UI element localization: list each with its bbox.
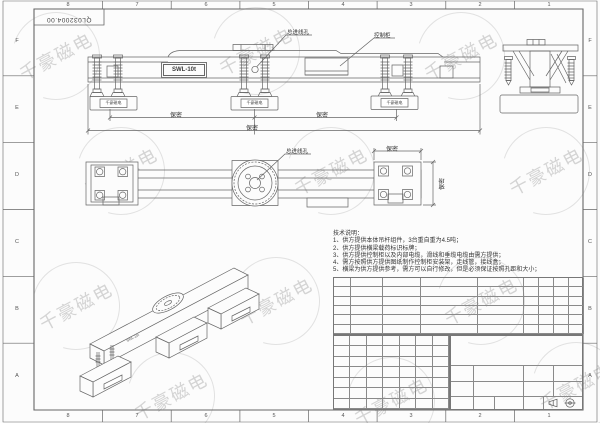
title-block-cell [451,382,473,396]
zone-letter-right: C [584,239,596,245]
inlet-hole-label: 总进线孔 [287,28,309,36]
table-cell [524,297,539,306]
table-cell [383,278,421,287]
table-cell [433,388,449,398]
table-cell [367,399,383,409]
title-block-cell [473,397,494,409]
table-cell [478,278,524,287]
zone-number-bottom: 7 [131,413,143,419]
table-cell [400,388,416,398]
table-cell [383,388,399,398]
table-cell [539,325,554,334]
table-cell [351,306,383,315]
table-cell [351,287,383,296]
table-cell [421,297,478,306]
table-cell [383,315,421,324]
table-cell [400,367,416,377]
zone-number-bottom: 8 [62,413,74,419]
zone-letter-left: C [11,239,23,245]
table-cell [351,297,383,306]
zone-letter-right: B [584,306,596,312]
table-cell [433,357,449,367]
table-cell [334,325,351,334]
title-block-cell [523,397,543,409]
front-view-linework [86,35,482,135]
zone-letter-right: A [584,373,596,379]
notes-line: 1、供方提供本体吊杆组件，3台重自重为4.5吨； [333,238,540,245]
table-cell [383,399,399,409]
zone-number-top: 8 [62,2,74,8]
table-cell [383,336,399,346]
zone-letter-left: B [11,306,23,312]
table-cell [478,287,524,296]
table-cell [350,346,366,356]
control-cabinet-label: 控制柜 [374,31,391,39]
table-cell [554,315,569,324]
isometric-view-linework [80,268,259,397]
table-cell [524,306,539,315]
table-cell [569,278,584,287]
table-cell [334,306,351,315]
table-cell [400,346,416,356]
plan-view-linework [86,148,436,207]
table-cell [383,297,421,306]
zone-letter-left: A [11,373,23,379]
table-cell [433,399,449,409]
zone-number-top: 3 [405,2,417,8]
table-cell [351,325,383,334]
table-cell [478,297,524,306]
table-cell [367,388,383,398]
table-cell [400,357,416,367]
table-cell [539,306,554,315]
zone-letter-right: F [584,38,596,44]
zone-number-top: 1 [543,2,555,8]
title-block-cell [553,366,582,381]
zone-number-bottom: 1 [543,413,555,419]
dim-label-width: 保密 [386,144,398,153]
table-cell [334,388,350,398]
table-cell [367,357,383,367]
zone-number-bottom: 3 [405,413,417,419]
table-cell [478,325,524,334]
table-cell [554,287,569,296]
table-cell [539,297,554,306]
table-cell [383,306,421,315]
table-cell [569,315,584,324]
title-block-cell [523,366,552,381]
table-cell [416,399,432,409]
technical-notes: 技术说明： 1、供方提供本体吊杆组件，3台重自重为4.5吨； 2、供方提供横梁载… [333,231,540,275]
table-cell [334,367,350,377]
table-cell [351,315,383,324]
projection-symbol-cell [543,397,582,409]
table-cell [569,297,584,306]
zone-letter-left: E [11,105,23,111]
table-cell [554,325,569,334]
table-cell [334,378,350,388]
table-cell [524,287,539,296]
table-cell [367,346,383,356]
title-block-cell [523,382,552,396]
title-block-cell [451,366,473,381]
magnet-logo-plate: 千豪磁电 [100,99,127,108]
notes-line: 5、横梁为供方提供参考，需方可以自行修改，但是必须保证按照孔距和大小； [333,267,540,274]
title-block-cell [494,397,523,409]
table-cell [367,367,383,377]
table-cell [416,336,432,346]
table-cell [421,278,478,287]
table-cell [350,399,366,409]
title-block-row [451,381,582,396]
table-cell [350,367,366,377]
table-cell [334,357,350,367]
dim-label-height: 保密 [437,178,446,190]
zone-number-bottom: 2 [474,413,486,419]
table-cell [524,325,539,334]
table-cell [383,357,399,367]
table-cell [569,306,584,315]
zone-number-top: 6 [200,2,212,8]
dim-label-overall: 保密 [246,123,258,132]
title-block-cell [451,336,582,365]
title-block-cell [553,382,582,396]
table-cell [478,315,524,324]
drawing-sheet: 千豪磁电 千豪磁电 千豪磁电 千豪磁电 千豪磁电 千豪磁电 千豪磁电 千豪磁电 … [0,0,600,423]
table-cell [433,367,449,377]
dim-label-right: 保密 [316,110,328,119]
title-block-cell [451,397,473,409]
table-cell [400,336,416,346]
table-cell [433,336,449,346]
table-cell [421,315,478,324]
zone-letter-right: D [584,172,596,178]
magnet-logo-plate: 千豪磁电 [241,99,268,108]
title-block-top-row [451,336,582,365]
table-cell [350,388,366,398]
zone-letter-left: D [11,172,23,178]
table-cell [421,287,478,296]
table-cell [539,278,554,287]
table-cell [433,378,449,388]
table-cell [383,367,399,377]
table-cell [421,325,478,334]
table-cell [367,336,383,346]
magnet-logo-plate: 千豪磁电 [381,99,408,108]
zone-number-top: 5 [268,2,280,8]
title-block [450,335,583,410]
table-cell [554,306,569,315]
drawing-number: QL032004.00 [36,11,102,23]
table-cell [539,315,554,324]
zone-letter-right: E [584,105,596,111]
table-cell [334,297,351,306]
zone-number-top: 7 [131,2,143,8]
table-cell [524,315,539,324]
table-cell [554,278,569,287]
table-cell [421,306,478,315]
table-cell [383,287,421,296]
table-cell [416,378,432,388]
revision-grid [333,335,450,410]
table-cell [334,336,350,346]
table-cell [383,346,399,356]
table-cell [478,306,524,315]
zone-number-bottom: 6 [200,413,212,419]
table-cell [334,287,351,296]
table-cell [554,297,569,306]
parts-list-table [333,277,583,335]
zone-number-top: 4 [337,2,349,8]
projection-symbols [546,397,580,409]
table-cell [383,325,421,334]
table-cell [334,346,350,356]
inlet-hole-label-plan: 总进线孔 [286,147,308,155]
table-cell [433,346,449,356]
table-cell [416,367,432,377]
table-cell [400,378,416,388]
dim-label-left: 保密 [170,110,182,119]
table-cell [383,378,399,388]
title-block-cell [473,382,523,396]
table-cell [569,325,584,334]
table-cell [334,278,351,287]
table-cell [334,399,350,409]
table-cell [367,378,383,388]
table-cell [416,346,432,356]
zone-number-bottom: 4 [337,413,349,419]
table-cell [334,315,351,324]
table-cell [350,336,366,346]
table-cell [539,287,554,296]
title-block-cell [473,366,523,381]
table-cell [524,278,539,287]
title-block-bottom-row [451,396,582,409]
table-cell [350,357,366,367]
zone-number-top: 2 [474,2,486,8]
table-cell [400,399,416,409]
zone-number-bottom: 5 [268,413,280,419]
model-label: SWL-10t [163,64,205,76]
notes-line: 2、供方提供横梁载荷标识标牌； [333,246,540,253]
table-cell [351,278,383,287]
title-block-row [451,365,582,381]
table-cell [350,378,366,388]
zone-letter-left: F [11,38,23,44]
table-cell [569,287,584,296]
side-view-linework [500,40,578,114]
table-cell [416,388,432,398]
table-cell [416,357,432,367]
